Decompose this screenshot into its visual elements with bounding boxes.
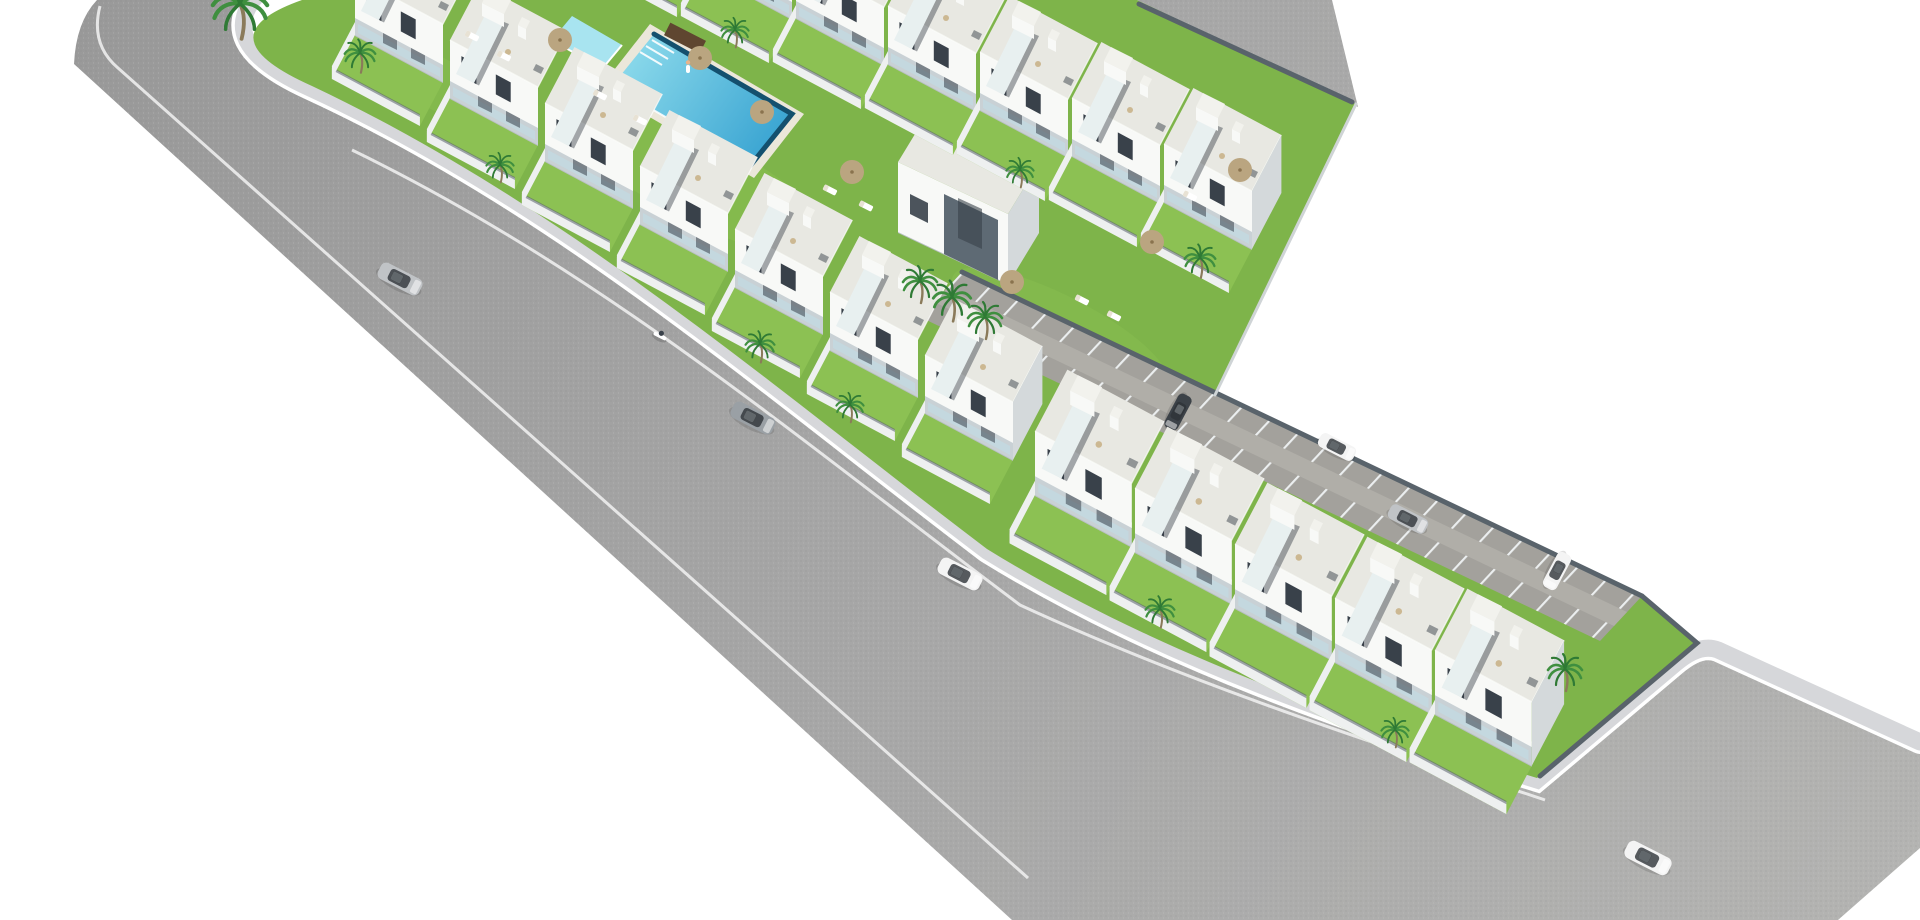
swimmer [686, 60, 690, 73]
parasol [688, 46, 712, 70]
parasol [840, 160, 864, 184]
parasol [750, 100, 774, 124]
parasol [1000, 270, 1024, 294]
parasol [548, 28, 572, 52]
aerial-render: Aerial 3D render of a new-build white to… [0, 0, 1920, 920]
parasol [1140, 230, 1164, 254]
render-canvas: Aerial 3D render of a new-build white to… [0, 0, 1920, 920]
parasol [1228, 158, 1252, 182]
